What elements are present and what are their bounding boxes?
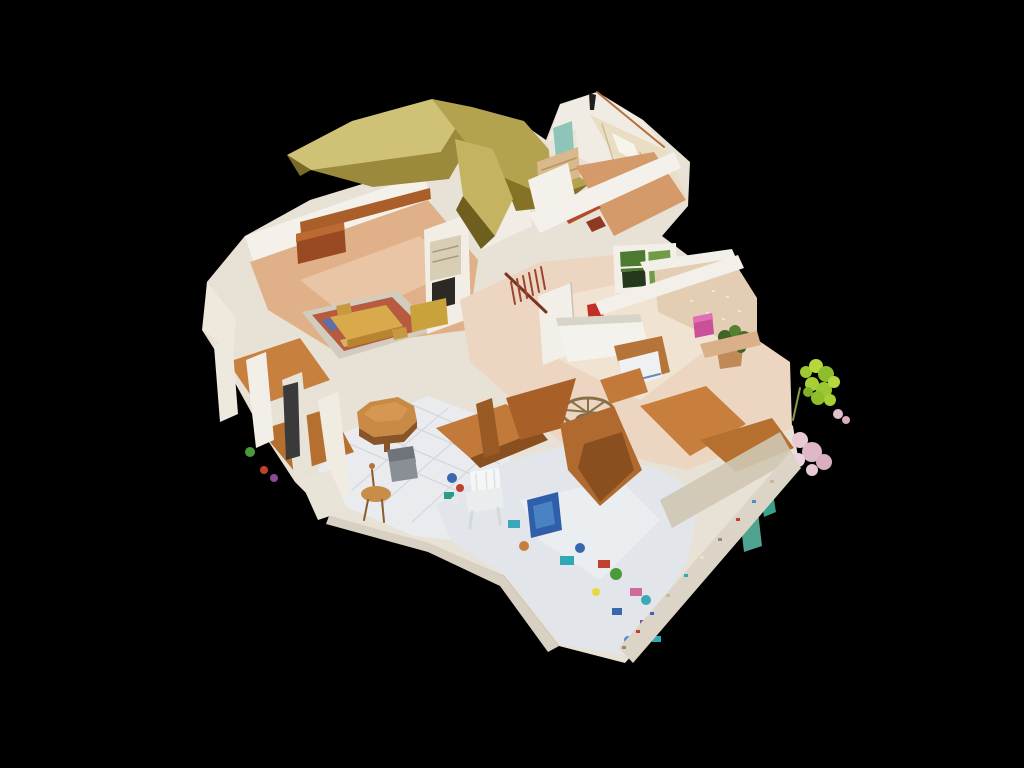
clutter-1 — [447, 473, 457, 483]
fragment-purple-bit — [270, 474, 278, 482]
clutter-10 — [610, 568, 622, 580]
coral-blob-7 — [842, 416, 850, 424]
band-speckle-8 — [650, 612, 654, 615]
clutter-6 — [519, 541, 529, 551]
fragment-red-bit — [260, 466, 268, 474]
clutter-9 — [598, 560, 610, 568]
clutter-11 — [630, 588, 642, 596]
clutter-8 — [575, 543, 585, 553]
band-speckle-10 — [622, 646, 626, 649]
clutter-2 — [456, 484, 464, 492]
band-speckle-7 — [666, 594, 670, 597]
gray-armchair-seat — [389, 458, 418, 482]
band-speckle-2 — [752, 500, 756, 503]
chair-slat-3 — [494, 470, 495, 490]
bright-plant-stem — [793, 388, 800, 420]
clutter-5 — [508, 520, 520, 528]
clutter-12 — [641, 595, 651, 605]
brick-speckle-4 — [712, 290, 715, 292]
clutter-14 — [592, 588, 600, 596]
band-speckle-1 — [770, 480, 774, 483]
garden-window-green-dark — [622, 270, 646, 288]
chair-slat-2 — [486, 472, 487, 492]
chair-leg-2 — [498, 508, 500, 524]
cut-wall-dark-band — [283, 382, 300, 460]
bright-plant-leaf-9 — [803, 387, 813, 397]
band-speckle-6 — [684, 574, 688, 577]
clutter-13 — [612, 608, 622, 615]
wood-stool-seat — [361, 486, 391, 502]
wall-picture — [430, 235, 461, 281]
coral-blob-5 — [806, 464, 818, 476]
wood-stool-knob — [369, 463, 375, 469]
dollhouse-3d-viewport[interactable] — [0, 0, 1024, 768]
band-speckle-3 — [736, 518, 740, 521]
toy-shelf-blue-light — [533, 501, 555, 529]
band-speckle-5 — [700, 556, 704, 559]
band-speckle-4 — [718, 538, 722, 541]
clutter-7 — [560, 556, 574, 565]
brick-speckle-7 — [706, 312, 709, 314]
brick-speckle-8 — [722, 318, 725, 320]
coral-blob-6 — [833, 409, 843, 419]
dollhouse-svg — [0, 0, 1024, 768]
clutter-4 — [451, 496, 459, 504]
brick-speckle-5 — [726, 296, 729, 298]
coral-blob-4 — [816, 454, 832, 470]
brick-speckle-6 — [690, 300, 693, 302]
fragment-green-bit — [245, 447, 255, 457]
bright-plant-leaf-8 — [824, 394, 836, 406]
brick-speckle-9 — [738, 310, 741, 312]
chair-leg-1 — [470, 512, 472, 528]
garden-window-green-1 — [620, 250, 646, 272]
bright-plant-leaf-6 — [828, 376, 840, 388]
band-speckle-9 — [636, 630, 640, 633]
bright-plant-leaf-7 — [811, 391, 825, 405]
